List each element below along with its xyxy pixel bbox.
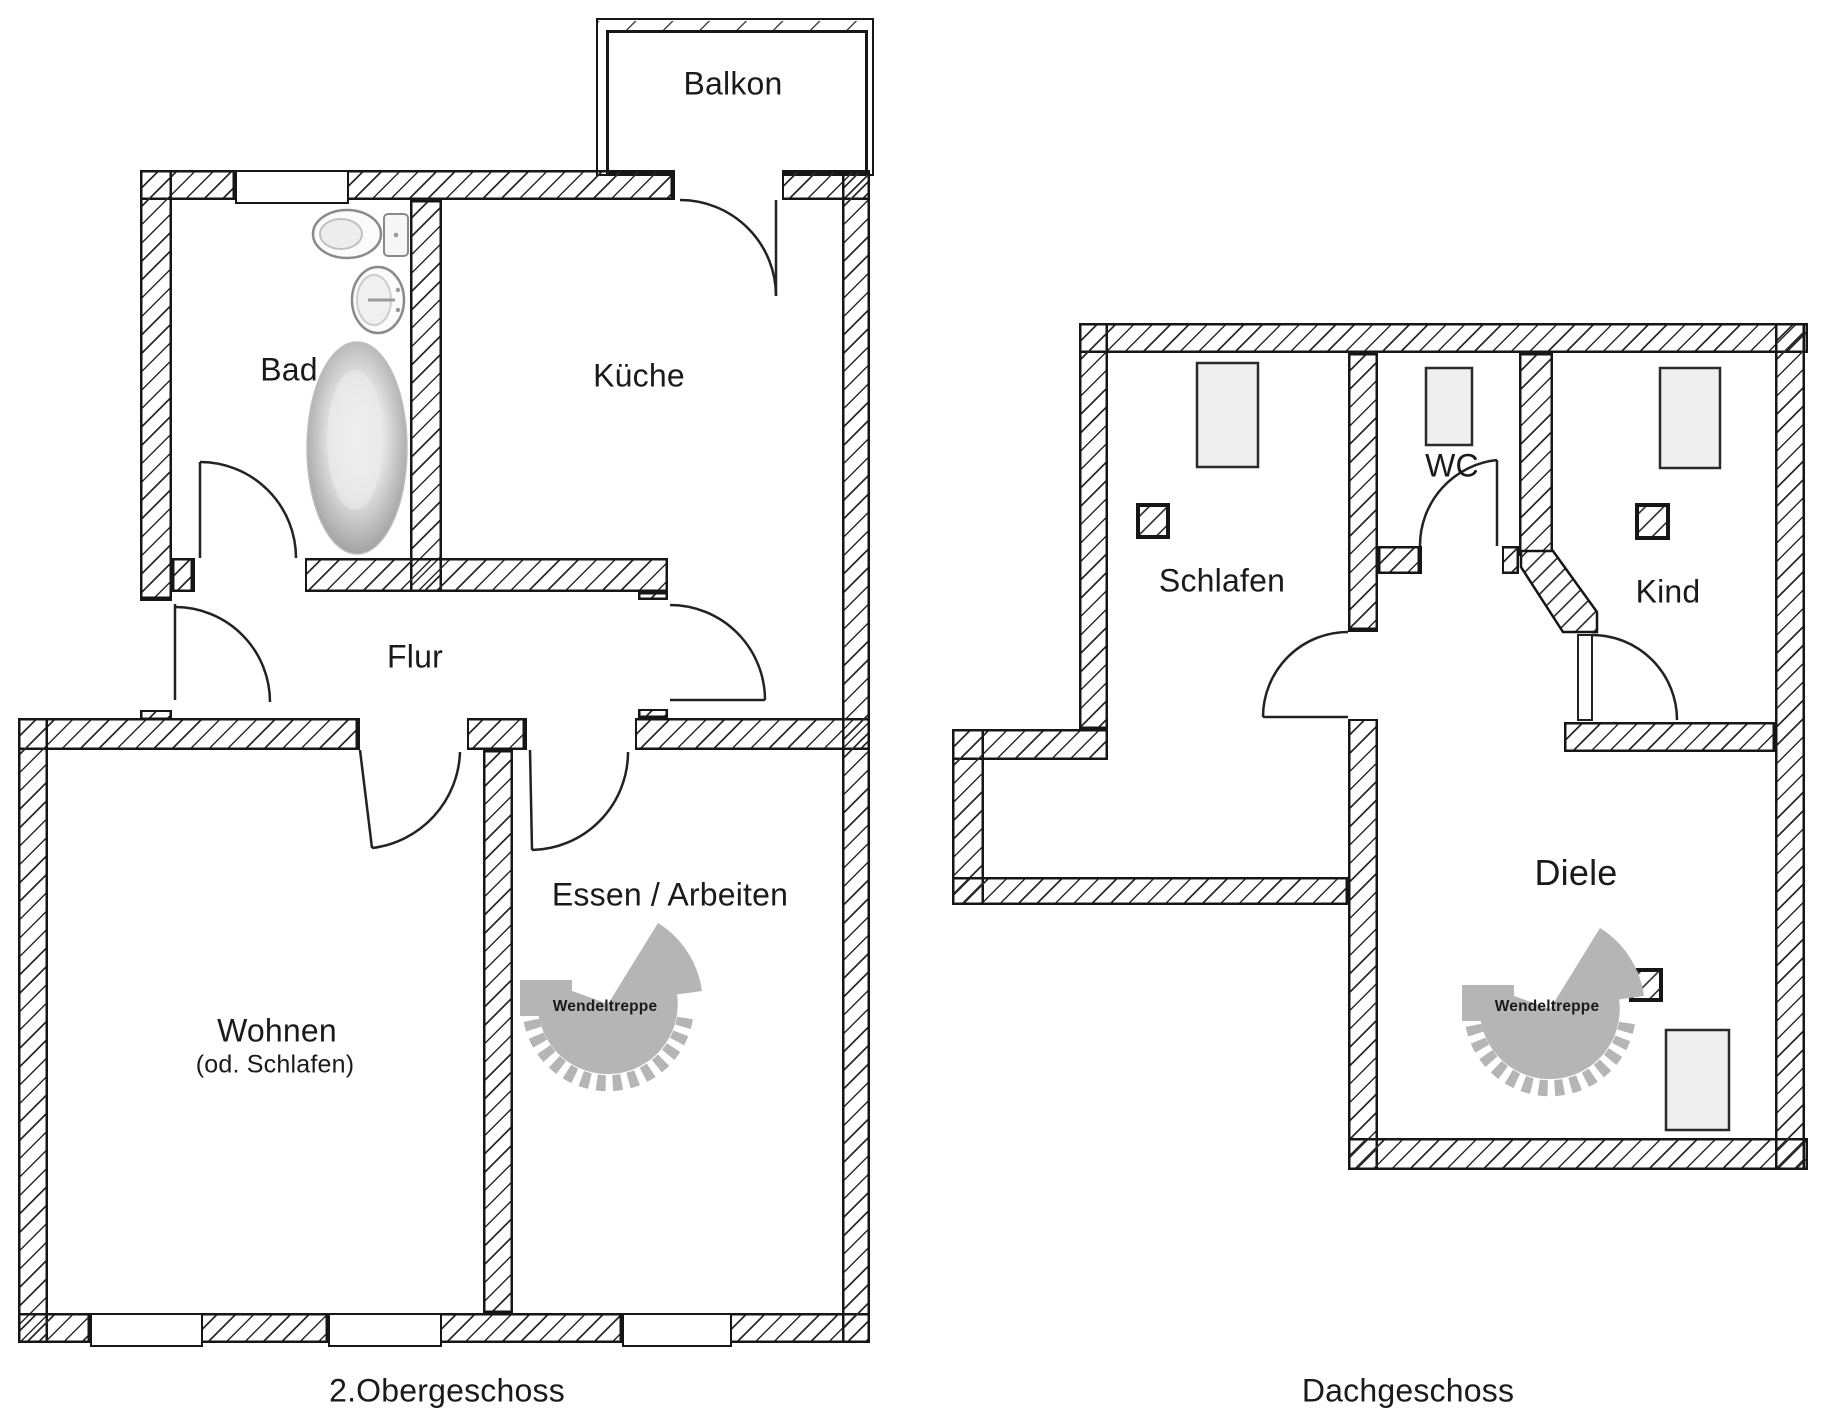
room-label-diele: Diele	[1534, 852, 1617, 894]
room-sublabel-wohnen: (od. Schlafen)	[196, 1051, 354, 1080]
entry-door	[175, 604, 270, 702]
room-label-essen-arbeiten: Essen / Arbeiten	[552, 877, 788, 914]
kind-door	[1578, 635, 1677, 720]
chimney-schlafen	[1138, 505, 1168, 537]
skylight-diele	[1666, 1030, 1729, 1130]
stairs-label-right: Wendeltreppe	[1495, 998, 1600, 1016]
room-label-kind: Kind	[1636, 574, 1701, 611]
room-label-wc: WC	[1425, 448, 1479, 485]
room-label-kueche: Küche	[593, 358, 685, 395]
sink-icon	[352, 267, 404, 333]
diagonal-wall	[1521, 551, 1597, 632]
floorplan-canvas: Balkon Bad Küche Flur Wohnen (od. Schlaf…	[0, 0, 1833, 1428]
stairs-label-left: Wendeltreppe	[553, 998, 658, 1016]
fixtures-overlay	[0, 0, 1833, 1428]
schlafen-door	[1263, 632, 1348, 717]
roof-window-schlafen	[1197, 363, 1258, 467]
room-label-balkon: Balkon	[683, 66, 782, 103]
essen-door	[530, 750, 628, 850]
roof-window-kind	[1660, 368, 1720, 468]
room-label-wohnen: Wohnen	[217, 1013, 337, 1050]
plan-title-dachgeschoss: Dachgeschoss	[1302, 1373, 1514, 1410]
room-label-schlafen: Schlafen	[1159, 563, 1285, 600]
room-label-flur: Flur	[387, 639, 443, 676]
kueche-door	[670, 605, 765, 700]
plan-title-obergeschoss: 2.Obergeschoss	[329, 1373, 565, 1410]
chimney-kind	[1637, 505, 1668, 538]
roof-window-wc	[1426, 368, 1472, 445]
room-label-bad: Bad	[260, 352, 318, 389]
bad-door	[200, 462, 296, 558]
wohnen-door	[360, 750, 460, 848]
toilet-icon	[313, 210, 408, 258]
bathtub-icon	[307, 342, 407, 554]
balcony-door	[680, 200, 776, 296]
